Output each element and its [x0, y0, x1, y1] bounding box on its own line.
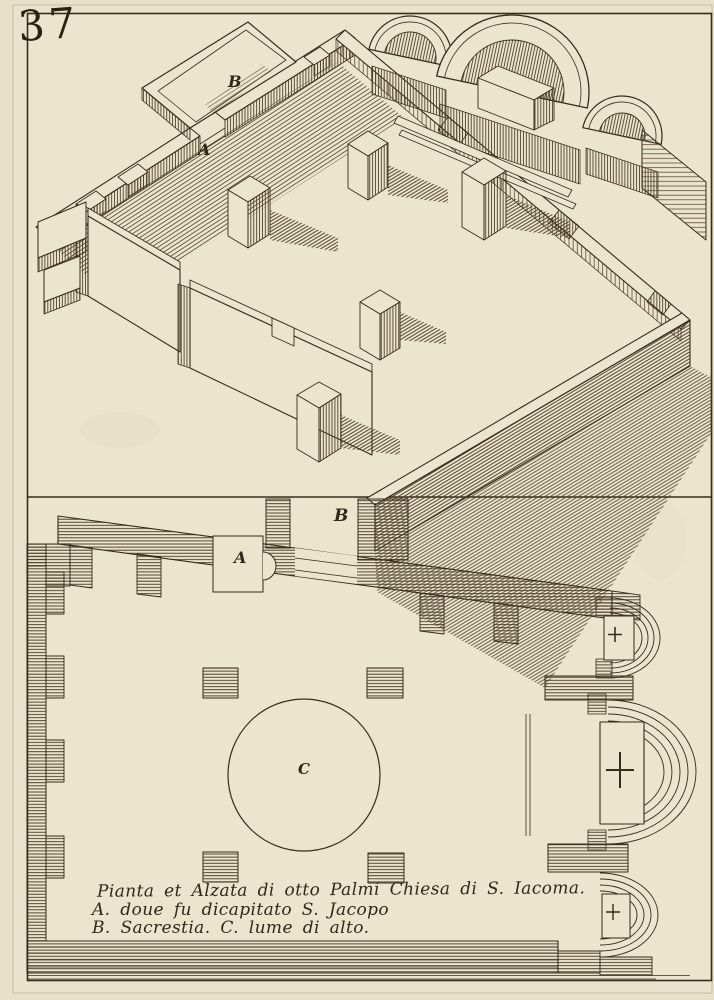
plan-label-b: B	[334, 506, 348, 526]
plan-label-a: A	[234, 548, 246, 567]
caption-line-1: Pianta et Alzata di otto Palmi Chiesa di…	[97, 878, 585, 901]
west-corner-buttress	[38, 202, 86, 314]
paper-stain	[80, 412, 160, 448]
etching-plate: 37 B A B A C Pianta et Alzata di otto Pa…	[0, 0, 714, 1000]
elevation-label-b: B	[228, 72, 242, 91]
caption-line-2: A. doue fu dicapitato S. Jacopo	[92, 900, 389, 920]
caption-line-3: B. Sacrestia. C. lume di alto.	[92, 918, 369, 938]
plan-label-c: C	[298, 760, 310, 778]
elevation-label-a: A	[198, 140, 210, 159]
etching-drawing	[0, 0, 714, 1000]
plate-number: 37	[16, 0, 81, 51]
